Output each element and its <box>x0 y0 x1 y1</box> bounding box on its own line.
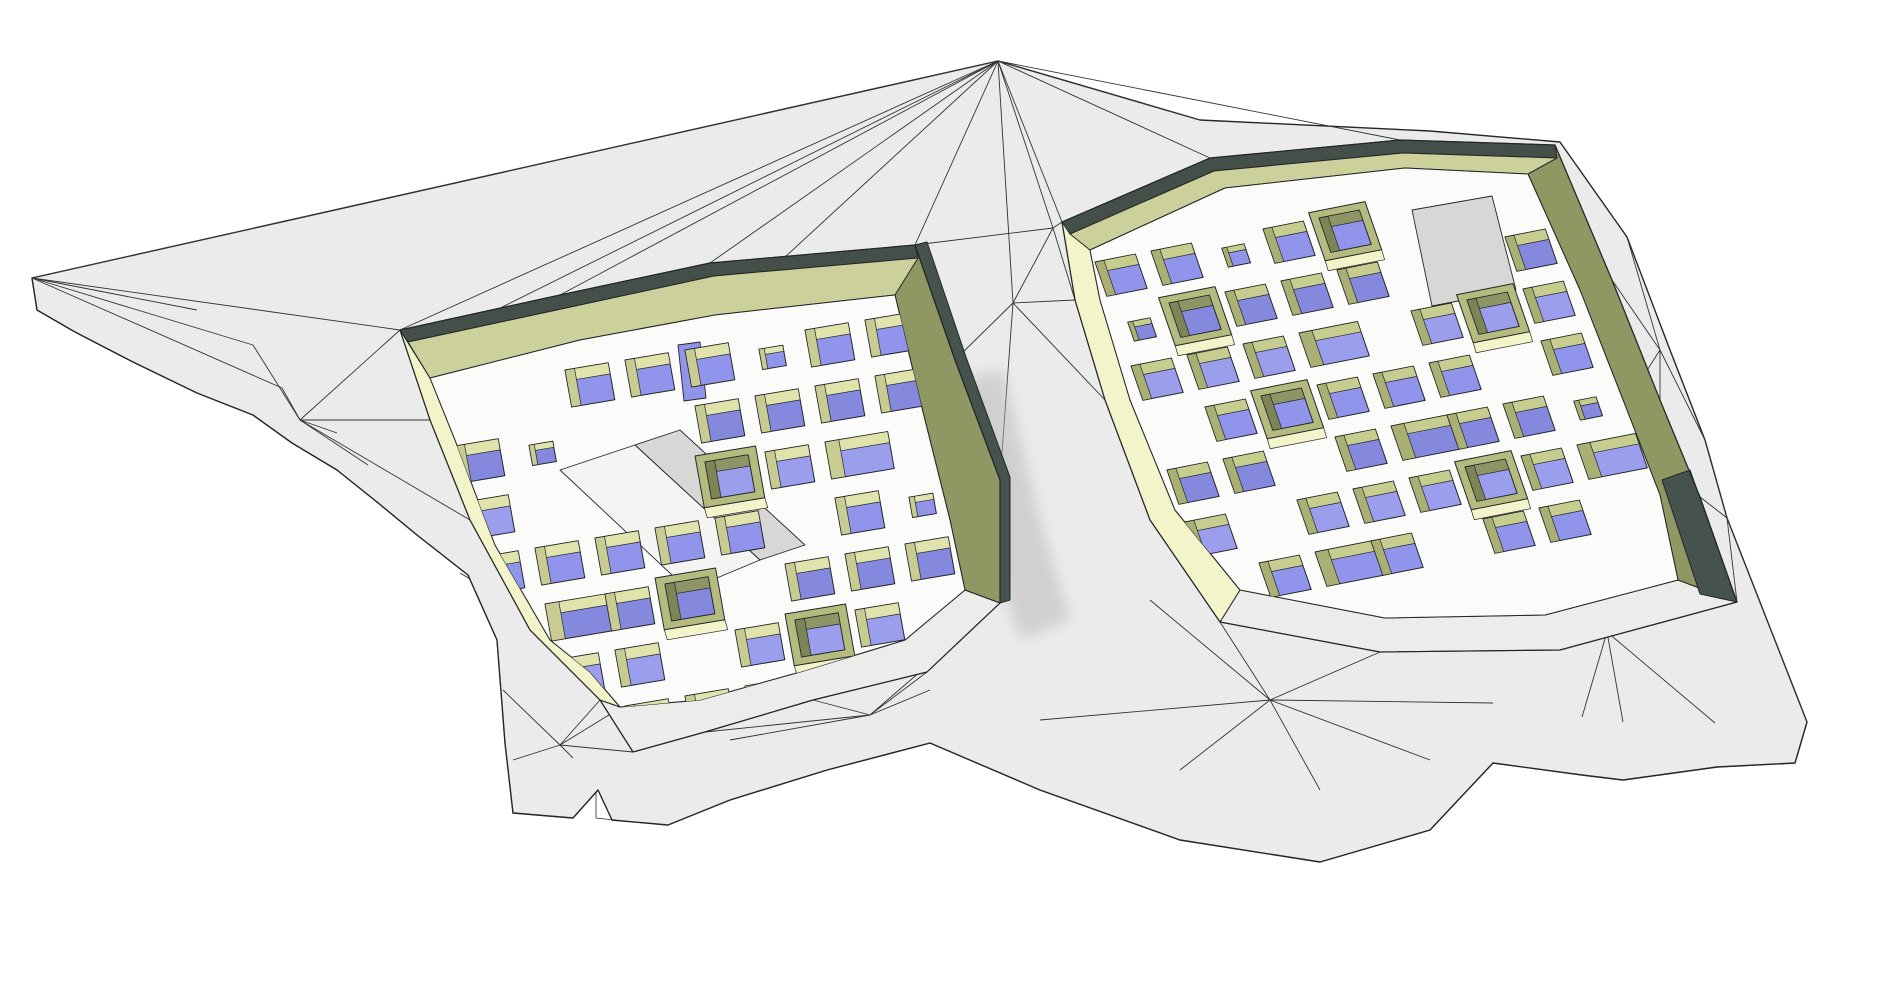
viewport-canvas <box>0 0 1893 985</box>
site-model-3d-view <box>0 0 1893 985</box>
